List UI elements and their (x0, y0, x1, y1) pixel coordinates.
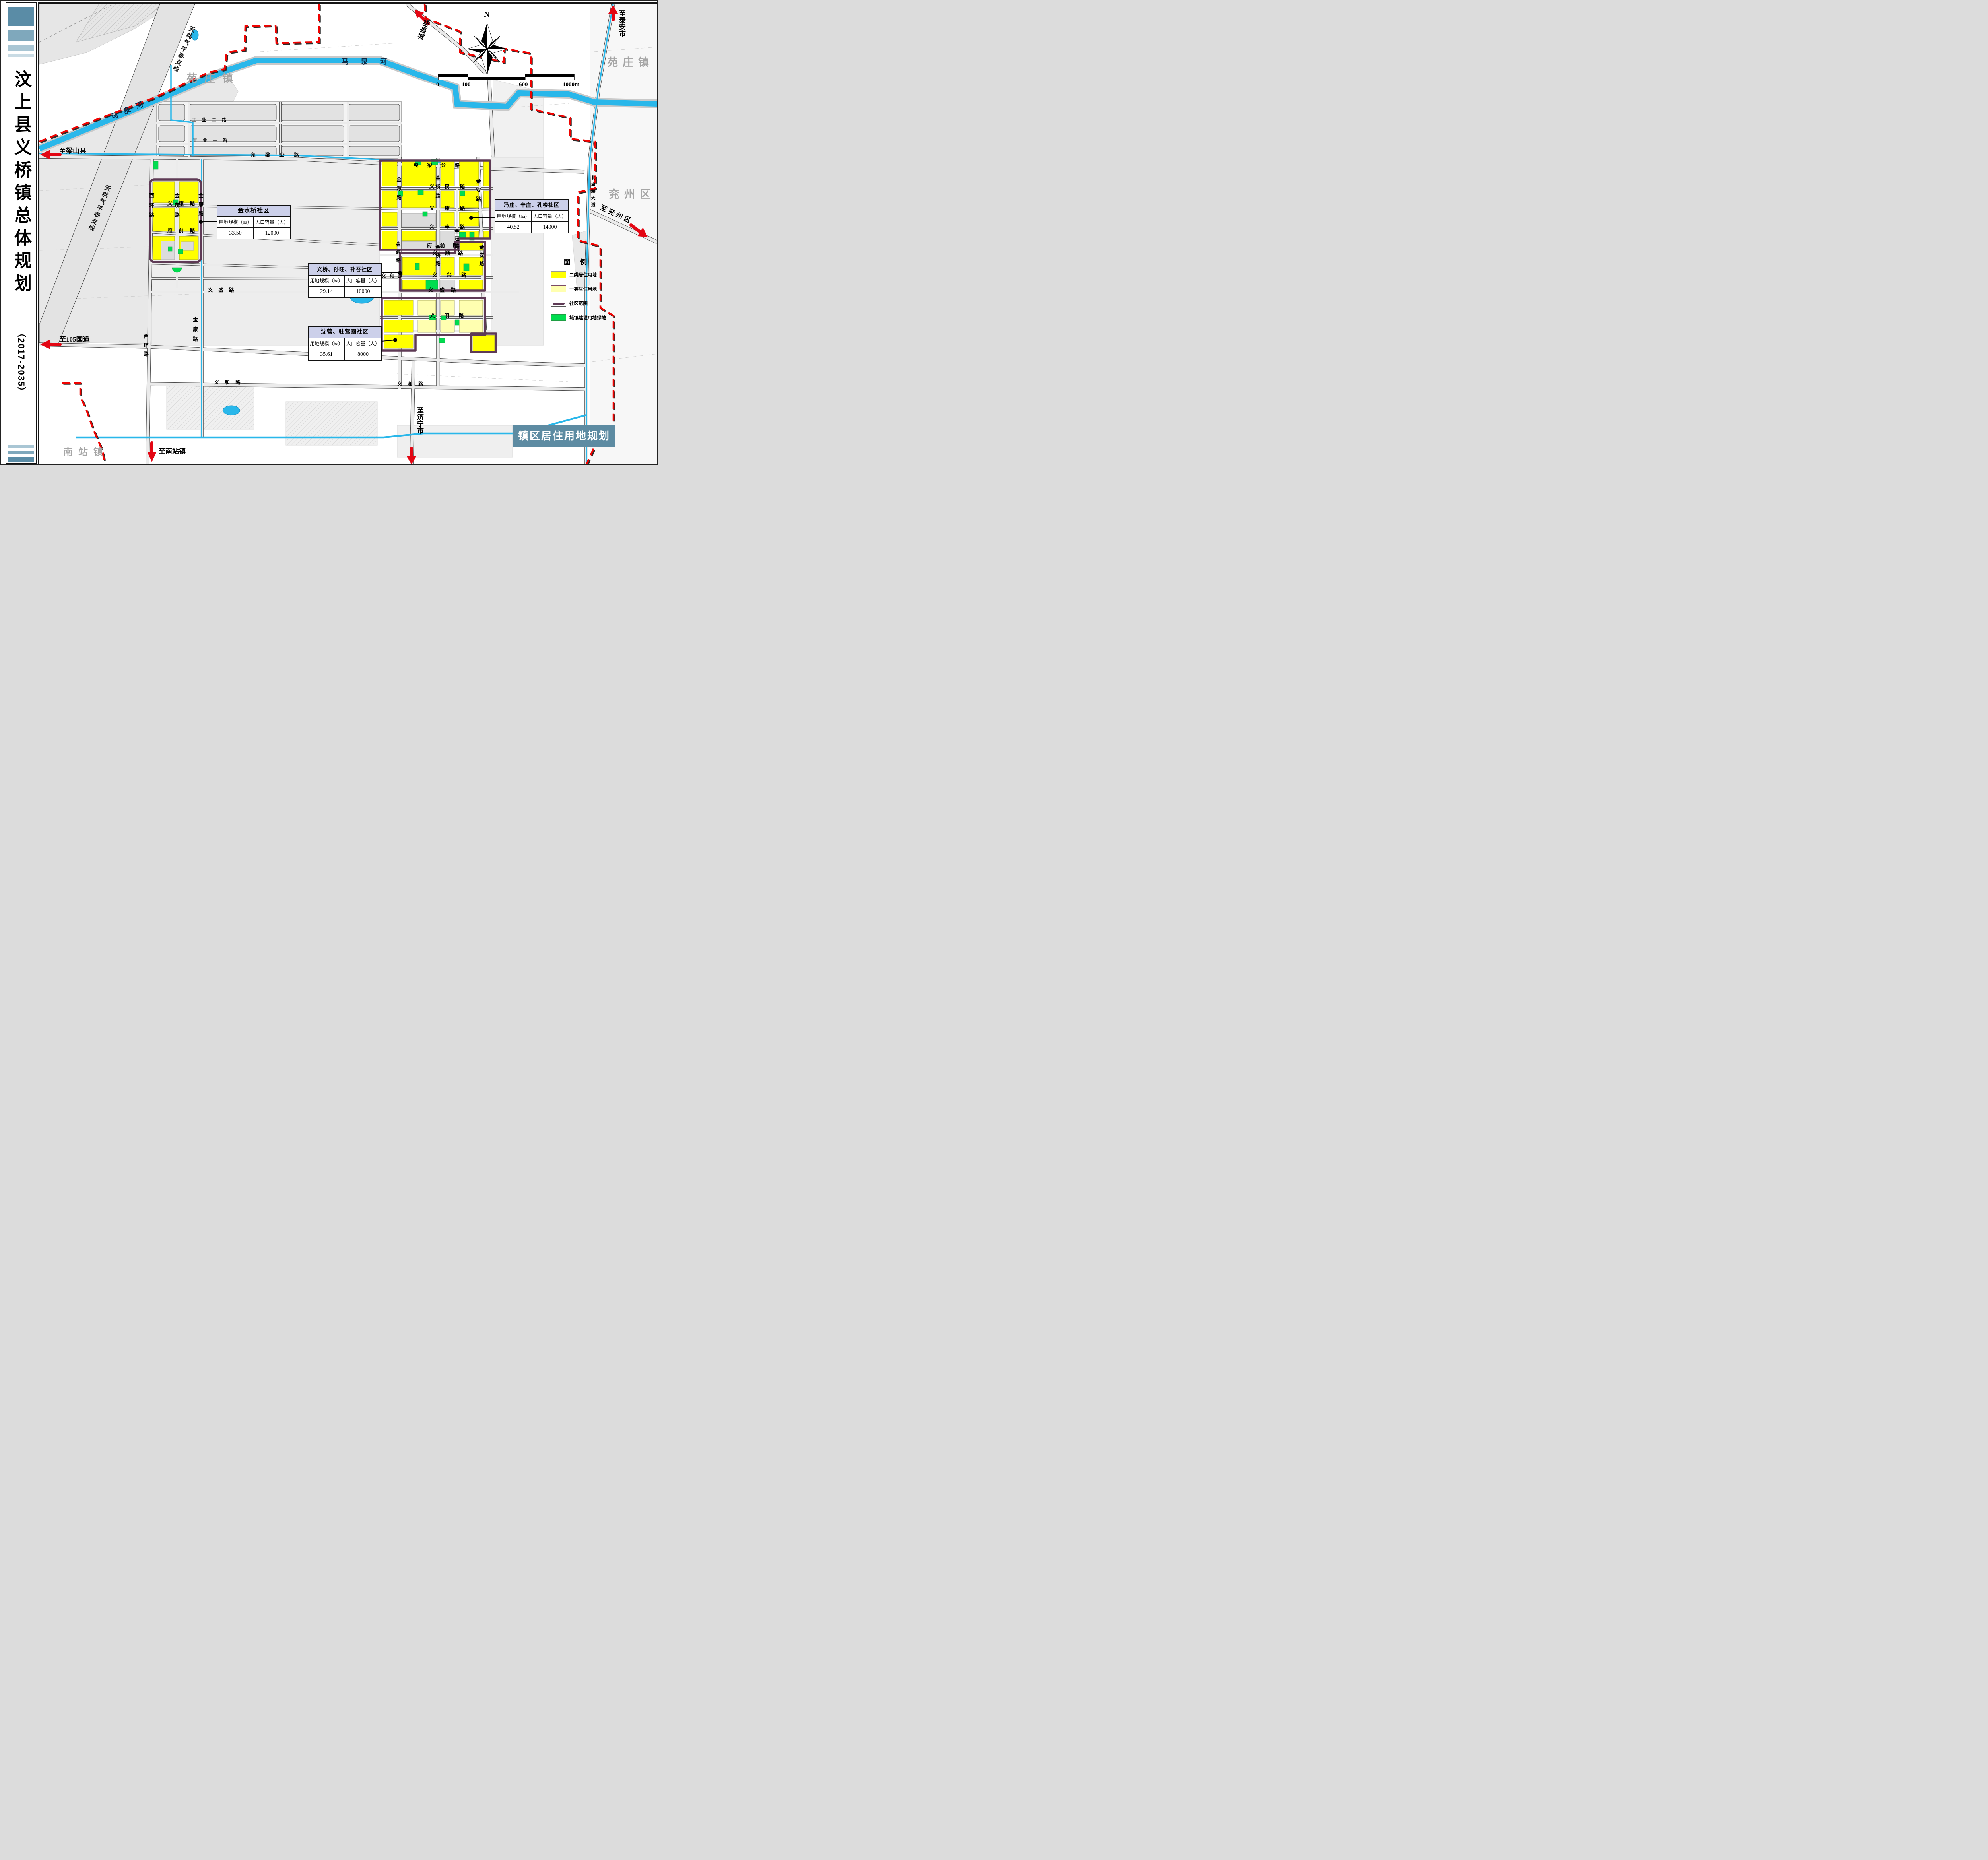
header-population: 人口容量（人） (254, 217, 290, 227)
sidebar-stripe (8, 457, 34, 462)
region-label-yuanzhuang-east: 苑庄镇 (607, 54, 654, 69)
value-area: 35.61 (309, 349, 345, 360)
plan-title: 汶上县义桥镇总体规划 (8, 70, 34, 297)
road-label: 义和路 (381, 272, 406, 279)
road-label: 义康路 (167, 199, 202, 207)
legend-label: 城镇建设用地绿地 (569, 315, 606, 321)
legend-swatch-community-boundary (551, 300, 566, 307)
compass-north-label: N (484, 10, 489, 19)
region-label-yuanzhuang-west: 苑庄镇 (186, 70, 240, 85)
road-label: 义盛路 (208, 286, 240, 293)
plan-years: （2017-2035） (15, 328, 27, 396)
value-population: 8000 (345, 349, 381, 360)
road-label: 金桥路 (434, 245, 441, 269)
dir-label-g105: 至105国道 (59, 334, 90, 344)
region-label-nanzhan: 南站镇 (63, 444, 109, 458)
value-population: 10000 (345, 287, 381, 297)
sidebar-stripe (8, 45, 34, 51)
map-canvas: 苑庄镇 苑庄镇 兖州区 南站镇 马泉河 马泉河 天然气平泰支线 天然气平泰支线 … (38, 2, 658, 465)
road-label: 义盛路 (428, 286, 462, 293)
legend-swatch-green-land (551, 314, 566, 321)
community-name: 冯庄、辛庄、孔楼社区 (495, 200, 568, 211)
sidebar-stripe (8, 7, 34, 26)
road-label: 工业二路 (192, 116, 232, 123)
sidebar-stripe (8, 451, 34, 454)
legend-item: 一类居住用地 (549, 284, 614, 295)
road-label: 金源路 (394, 241, 402, 266)
road-label: 府前路 (167, 226, 202, 234)
info-box-shenying: 沈营、驻驾圈社区 用地规模（ha） 人口容量（人） 35.61 8000 (308, 326, 382, 361)
road-label: 金安路 (474, 179, 482, 206)
road-label: 金康路 (191, 317, 199, 346)
legend-swatch-residential2 (551, 271, 566, 278)
legend-item: 社区范围 (549, 298, 614, 309)
value-area: 40.52 (495, 222, 532, 233)
info-box-fengzhuang: 冯庄、辛庄、孔楼社区 用地规模（ha） 人口容量（人） 40.52 14000 (495, 199, 569, 233)
value-population: 14000 (532, 222, 568, 233)
community-name: 义桥、孙旺、孙吾社区 (309, 264, 381, 276)
scale-tick-0: 0 (436, 82, 439, 88)
legend-item: 城镇建设用地绿地 (549, 313, 614, 324)
value-area: 33.50 (217, 228, 254, 239)
info-box-yiqiao: 义桥、孙旺、孙吾社区 用地规模（ha） 人口容量（人） 29.14 10000 (308, 263, 382, 298)
value-population: 12000 (254, 228, 290, 239)
dir-label-nanzhan: 至南站镇 (159, 446, 186, 456)
road-label: 义丰路 (429, 223, 476, 230)
sidebar-stripe (8, 30, 34, 41)
sidebar: 汶上县义桥镇总体规划 （2017-2035） (6, 2, 37, 464)
legend-label: 社区范围 (569, 300, 588, 307)
sidebar-stripe (8, 54, 34, 57)
road-label: 金旺路 (453, 229, 460, 251)
road-label: 义和路 (214, 378, 246, 386)
info-box-jinshuiqiao: 金水桥社区 用地规模（ha） 人口容量（人） 33.50 12000 (217, 205, 291, 239)
scale-tick-600: 600 (519, 82, 528, 88)
legend-title: 图 例 (564, 256, 614, 266)
value-area: 29.14 (309, 287, 345, 297)
road-label: 兖梁公路 (250, 151, 309, 158)
legend-label: 二类居住用地 (569, 272, 597, 278)
region-label-yanzhou: 兖州区 (609, 186, 655, 201)
road-label: 西环路 (142, 334, 149, 361)
road-label: 金安路 (478, 245, 485, 269)
legend: 图 例 二类居住用地 一类居住用地 社区范围 城镇建设用地绿地 (549, 256, 614, 324)
header-population: 人口容量（人） (345, 276, 381, 286)
road-label: 义康路 (429, 204, 476, 212)
header-area: 用地规模（ha） (495, 211, 532, 221)
legend-swatch-residential1 (551, 285, 566, 292)
sheet-title: 镇区居住用地规划图 (513, 425, 615, 447)
sidebar-stripe (8, 445, 34, 448)
map-drawing (39, 4, 657, 465)
road-label: 金茂路 (173, 193, 181, 222)
dir-label-liangshan: 至梁山县 (59, 145, 86, 155)
road-label: 兖梁公路 (414, 161, 468, 169)
header-area: 用地规模（ha） (309, 338, 345, 349)
road-label: 金桥路 (434, 175, 441, 202)
scale-tick-1000: 1000m (563, 82, 580, 88)
road-label: 金源路 (395, 177, 402, 204)
community-name: 沈营、驻驾圈社区 (309, 327, 381, 338)
community-name: 金水桥社区 (217, 206, 290, 217)
header-area: 用地规模（ha） (217, 217, 254, 227)
dir-label-jining: 至济宁市 (415, 407, 425, 434)
river-label-maquan-2: 马泉河 (342, 56, 399, 66)
road-label: 义和路 (397, 380, 429, 387)
header-population: 人口容量（人） (532, 211, 568, 221)
road-label: 工业一路 (193, 137, 233, 144)
dir-label-taian: 至泰安市 (617, 10, 627, 37)
road-label: 西环路 (148, 193, 155, 222)
compass-icon (467, 20, 507, 78)
scale-bar (438, 74, 574, 80)
road-label: 北旅游大道 (590, 175, 596, 209)
scale-tick-100: 100 (462, 82, 471, 88)
road-label: 金康路 (197, 193, 204, 220)
header-area: 用地规模（ha） (309, 276, 345, 286)
legend-item: 二类居住用地 (549, 270, 614, 281)
road-label: 义明路 (430, 311, 474, 319)
road-label: 义兴路 (432, 271, 476, 278)
header-population: 人口容量（人） (345, 338, 381, 349)
legend-label: 一类居住用地 (569, 286, 597, 292)
plan-sheet: 汶上县义桥镇总体规划 （2017-2035） (0, 0, 658, 465)
